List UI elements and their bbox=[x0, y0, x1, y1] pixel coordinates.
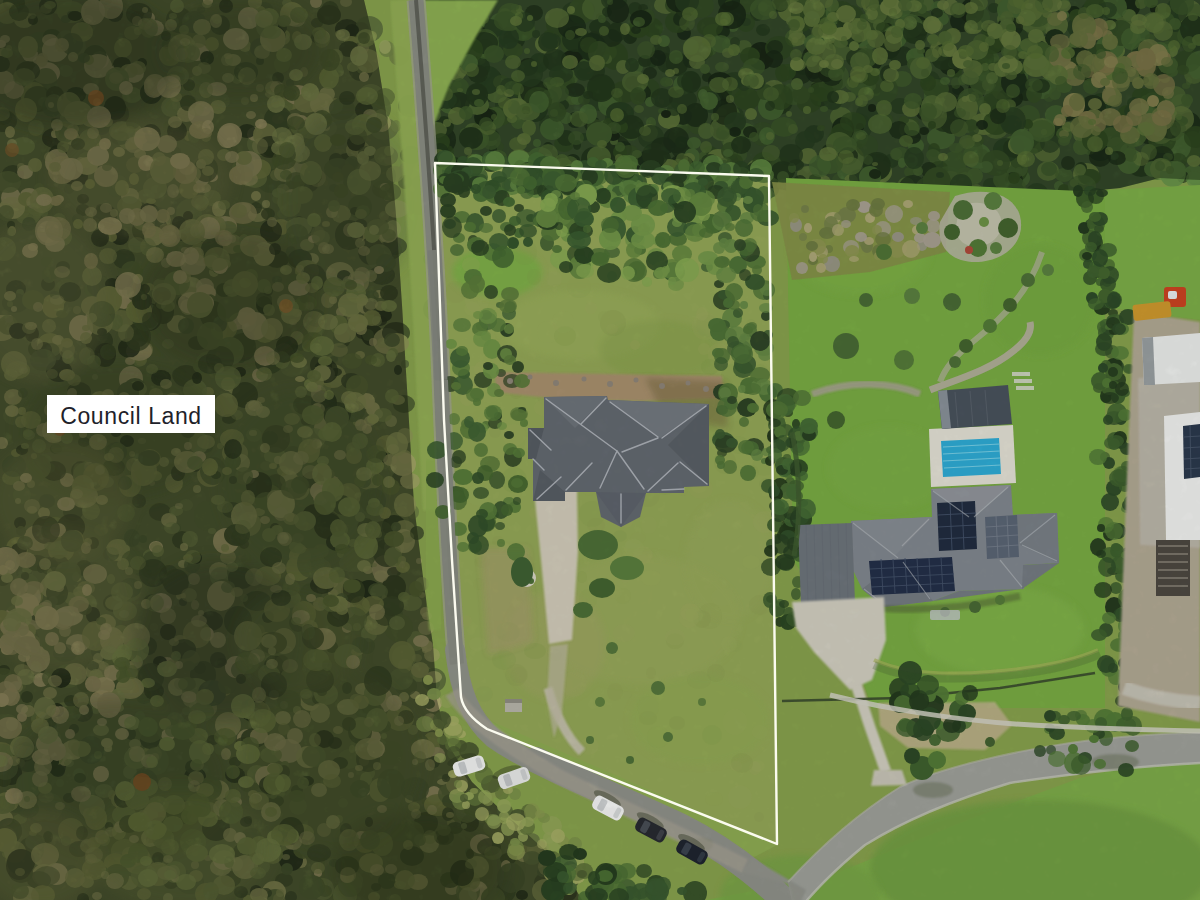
svg-text:Council Land: Council Land bbox=[60, 403, 201, 429]
